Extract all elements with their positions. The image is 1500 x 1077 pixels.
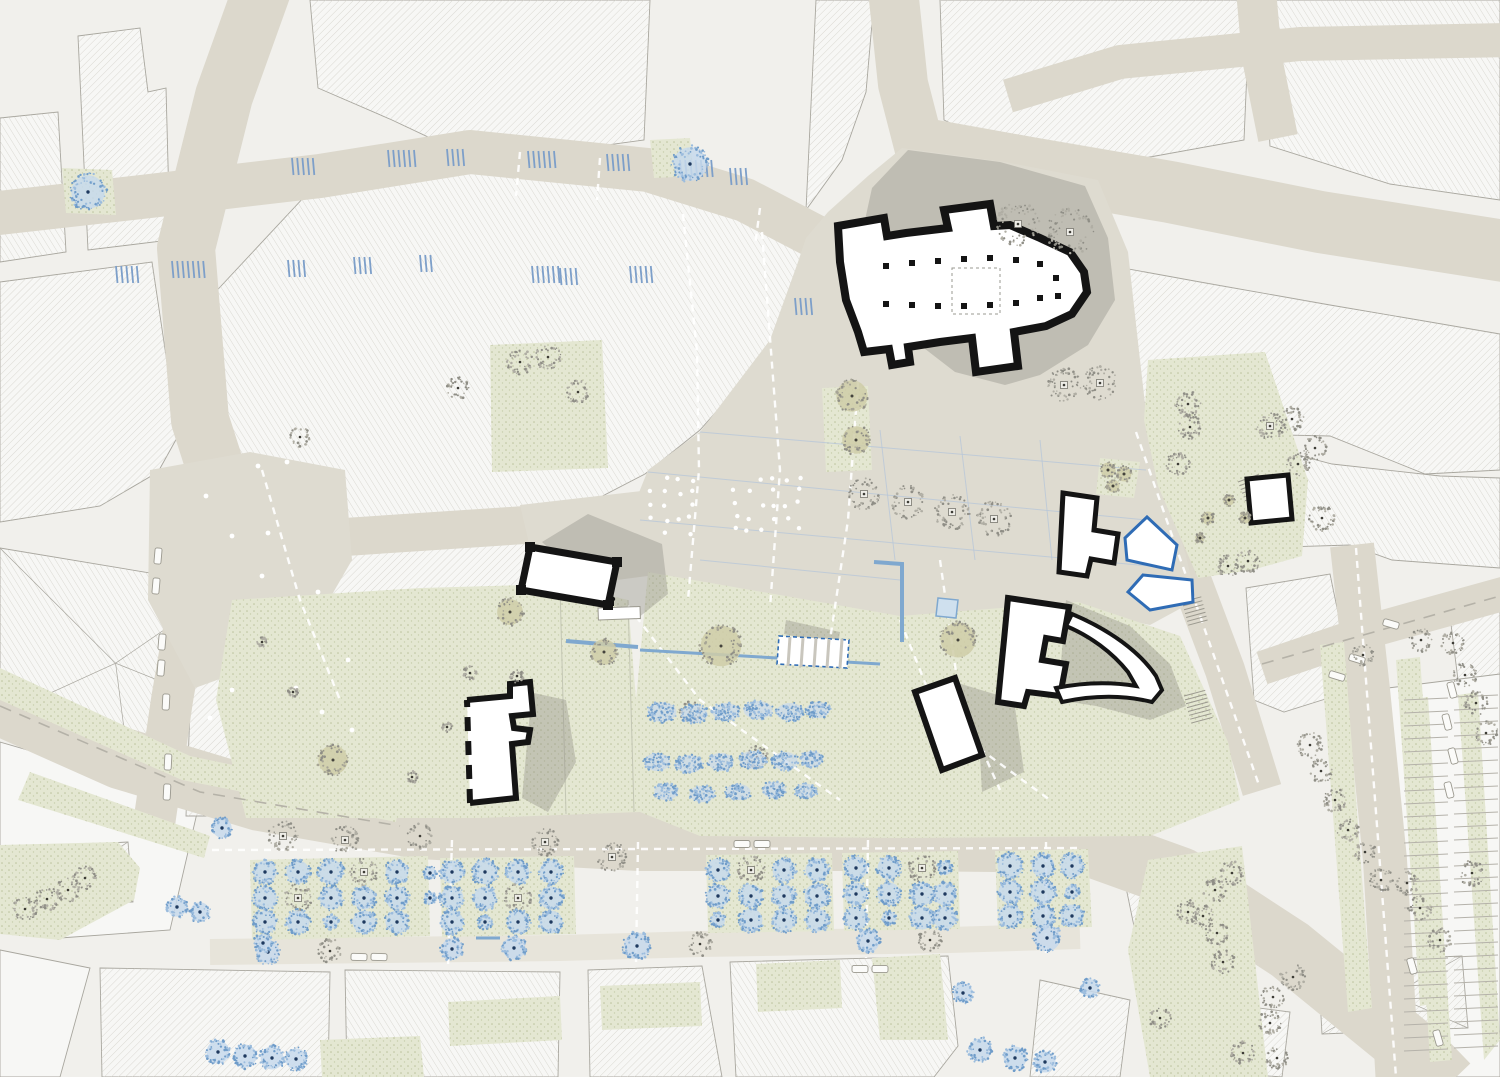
site-plan-map	[0, 0, 1500, 1077]
site-plan-svg	[0, 0, 1500, 1077]
parked-car	[734, 841, 750, 848]
parked-car	[158, 634, 166, 651]
parked-car	[754, 841, 770, 848]
parked-car	[152, 578, 160, 595]
parked-car	[872, 965, 888, 972]
pond	[936, 598, 958, 618]
project-building	[1247, 475, 1292, 523]
parked-car	[351, 953, 367, 961]
parked-car	[164, 754, 172, 770]
parked-car	[163, 784, 171, 800]
parked-car	[852, 965, 868, 972]
parked-car	[162, 694, 170, 710]
parked-car	[157, 660, 165, 677]
map-canvas	[0, 0, 1500, 1077]
parked-car	[371, 953, 387, 961]
parked-car	[154, 548, 162, 565]
